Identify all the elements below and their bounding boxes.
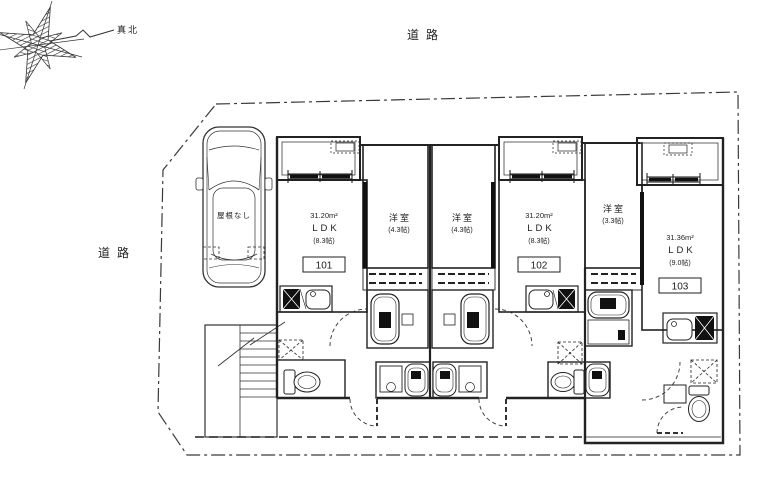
unit-101-number: 101 <box>316 261 333 272</box>
entrance-door-102 <box>479 399 506 426</box>
room-bedroom-101 <box>363 145 428 268</box>
unit-102-type-label: LDK <box>527 223 554 234</box>
toilet-101-icon <box>284 370 320 394</box>
parking-label: 屋根なし <box>217 210 251 220</box>
car-icon <box>196 127 272 287</box>
parking-space: 屋根なし <box>196 127 272 287</box>
bathtub-102-icon <box>461 294 489 344</box>
floor-plan-drawing: 真北 道路 道路 屋根なし <box>0 0 766 481</box>
unit-102-number: 102 <box>531 261 548 272</box>
toilet-102-icon <box>551 370 584 394</box>
road-label-left: 道路 <box>98 245 136 260</box>
unit-102-size-label: (8.3帖) <box>528 236 549 245</box>
kitchen-102-icon <box>529 289 575 309</box>
unit-101-size-label: (8.3帖) <box>313 236 334 245</box>
stairs <box>205 322 285 437</box>
north-label: 真北 <box>117 24 139 35</box>
shear-wall <box>640 192 644 285</box>
shower-door-102 <box>444 314 455 325</box>
washbasin-103-icon <box>586 364 609 396</box>
kitchen-103-icon <box>667 316 714 340</box>
shoe-cabinet-103 <box>664 385 686 403</box>
closet-102 <box>432 268 495 290</box>
bedroom-102-name: 洋室 <box>452 212 474 223</box>
unit-101-type-label: LDK <box>312 223 339 234</box>
unit-102-labels: 31.20m² LDK (8.3帖) 102 洋室 (4.3帖) <box>451 211 560 272</box>
shear-wall <box>491 182 495 268</box>
washbasin-102-icon <box>433 364 481 396</box>
unit-103-type-label: LDK <box>668 245 695 256</box>
unit-101-labels: 31.20m² LDK (8.3帖) 101 洋室 (4.3帖) <box>303 211 411 272</box>
shower-door-101 <box>402 314 413 325</box>
bedroom-103-name: 洋室 <box>603 203 625 214</box>
bedroom-102-size: (4.3帖) <box>451 225 472 234</box>
room-bedroom-102 <box>432 145 495 268</box>
bedroom-101-size: (4.3帖) <box>388 225 409 234</box>
road-label-top: 道路 <box>407 27 445 42</box>
unit-103-size-label: (9.0帖) <box>669 258 690 267</box>
closet-101 <box>363 268 428 290</box>
north-star-icon <box>0 0 88 95</box>
kitchen-101-icon <box>283 289 330 309</box>
room-ldk-103 <box>642 185 723 330</box>
unit-103-area-label: 31.36m² <box>666 233 694 242</box>
toilet-103-icon <box>689 386 710 422</box>
compass: 真北 <box>0 0 139 95</box>
entrance-door-103 <box>657 407 683 433</box>
unit-102-area-label: 31.20m² <box>525 211 553 220</box>
bathtub-101-icon <box>371 294 399 344</box>
unit-101-area-label: 31.20m² <box>310 211 338 220</box>
unit-103-number: 103 <box>672 282 689 293</box>
bedroom-103-size: (3.3帖) <box>602 216 623 225</box>
floor-plan-svg: 真北 道路 道路 屋根なし <box>0 0 766 481</box>
bedroom-101-name: 洋室 <box>389 212 411 223</box>
closet-103 <box>585 268 642 290</box>
washbasin-101-icon <box>380 364 428 396</box>
shear-wall <box>363 182 367 268</box>
entrance-door-101 <box>350 399 377 426</box>
unit-103-labels: 31.36m² LDK (9.0帖) 103 洋室 (3.3帖) <box>602 203 701 293</box>
bathtub-103-icon <box>588 292 629 344</box>
